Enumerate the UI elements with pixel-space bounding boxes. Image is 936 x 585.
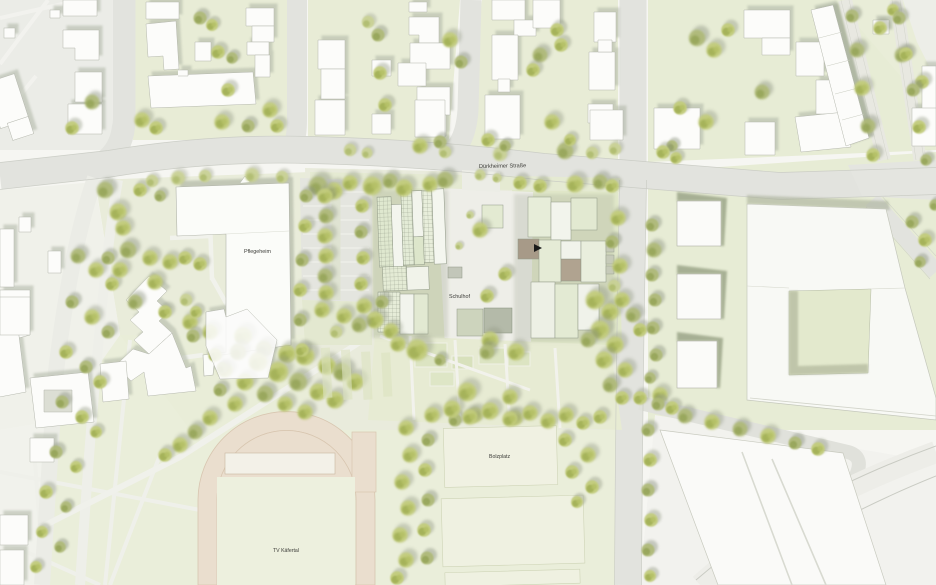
svg-text:Pflegeheim: Pflegeheim (244, 249, 271, 255)
svg-text:Dürkheimer Straße: Dürkheimer Straße (479, 163, 526, 170)
svg-text:Schulhof: Schulhof (449, 294, 470, 300)
svg-text:Bolzplatz: Bolzplatz (489, 454, 510, 460)
svg-text:TV Käfertal: TV Käfertal (273, 548, 299, 554)
